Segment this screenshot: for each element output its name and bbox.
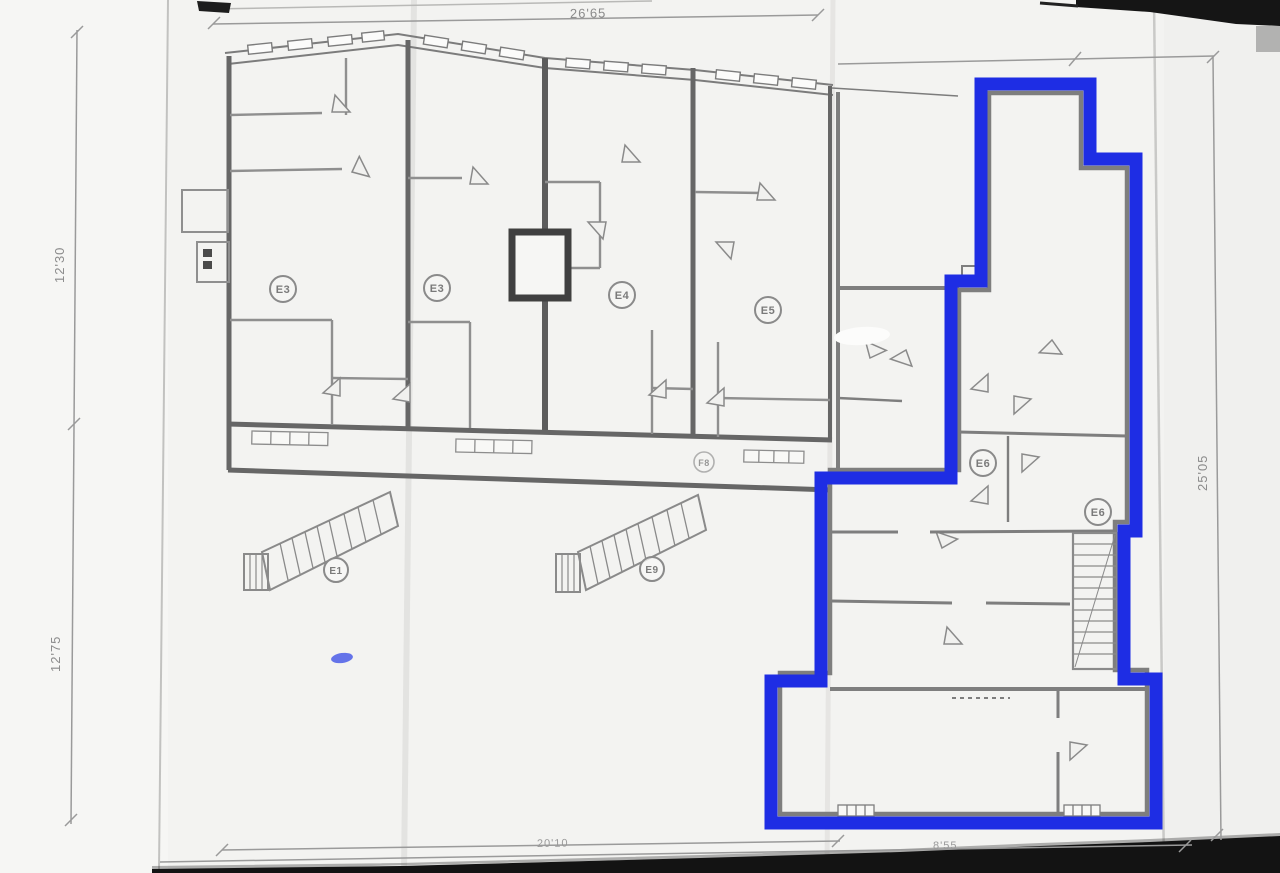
scan-mark [1256,26,1280,52]
room-label-apt1: E3 [270,276,296,302]
shaft [512,232,568,298]
room-label-text: E3 [430,283,444,295]
room-label-text: E3 [276,284,290,296]
room-label-text: E4 [615,290,630,302]
room-label-apt2: E3 [424,275,450,301]
room-label-unit-upper: E6 [970,450,996,476]
room-label-stair-left: E1 [324,558,348,582]
dim-bottom-left: 20'10 [537,837,569,850]
dim-bottom-right: 8'55 [933,840,957,852]
room-label-stair-middle: E9 [640,557,664,581]
room-label-unit-stair: E6 [1085,499,1111,525]
room-label-text: E6 [1091,507,1105,519]
room-label-text: E9 [645,565,658,576]
dim-top: 26'65 [570,5,607,21]
floor-plan-svg: 26'65 12'30 12'75 25'05 20'10 8'55 [0,0,1280,873]
scan-mark-top-left [197,1,231,13]
floor-plan-scan: 26'65 12'30 12'75 25'05 20'10 8'55 [0,0,1280,873]
room-label-text: F8 [698,458,710,468]
room-label-apt3: E4 [609,282,635,308]
dim-left-upper: 12'30 [52,247,67,283]
dim-right: 25'05 [1195,455,1210,491]
room-label-text: E6 [976,458,990,470]
room-label-text: E1 [329,566,342,577]
room-label-apt4: E5 [755,297,781,323]
room-label-corridor: F8 [694,452,714,472]
dim-left-lower: 12'75 [48,636,63,672]
room-label-text: E5 [761,305,775,317]
